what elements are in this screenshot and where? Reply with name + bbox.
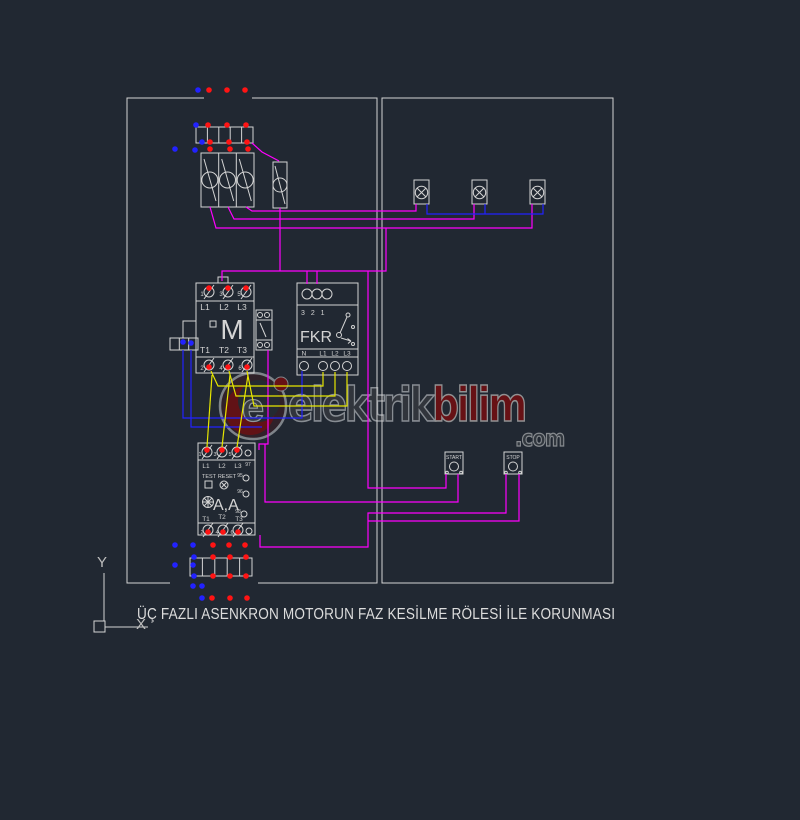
control-fuse	[273, 162, 287, 208]
contactor-t3: T3	[237, 345, 247, 355]
top-terminal-strip	[196, 127, 253, 143]
coil-link-wire	[183, 321, 196, 338]
schematic-drawing: 1 3 5 L1 L2 L3 M T1 T2 T3 2 4 6	[0, 0, 800, 820]
start-button-label: START	[446, 455, 462, 461]
contactor-l1: L1	[200, 302, 210, 312]
overload-aux-96: 96	[237, 489, 243, 495]
overload-aux-97: 97	[245, 462, 251, 468]
main-fuse-block	[201, 153, 254, 207]
contactor-l3: L3	[237, 302, 247, 312]
overload-terminal-6: 6	[230, 530, 233, 536]
overload-l1: L1	[202, 463, 210, 470]
overload-terminal-5: 5	[228, 452, 231, 458]
fkr-l3-label: L3	[343, 351, 351, 358]
overload-terminal-4: 4	[215, 530, 218, 536]
overload-l3: L3	[234, 463, 242, 470]
overload-name: A,A	[213, 497, 239, 514]
contactor-terminal-2: 2	[200, 366, 204, 372]
fkr-relay-block: 3 2 1 FKR N L1 L2 L3	[297, 283, 358, 375]
ucs-x-label: X	[136, 616, 146, 633]
overload-l2: L2	[218, 463, 226, 470]
overload-test-label: TEST	[202, 474, 217, 480]
lamp-icon-2	[472, 180, 487, 204]
bottom-terminal-strip	[190, 558, 252, 576]
contactor-terminal-4: 4	[219, 366, 223, 372]
lamp-icon-1	[414, 180, 429, 204]
panel-outlines	[127, 98, 613, 583]
fkr-name: FKR	[300, 329, 332, 346]
motor-wiring-yellow	[207, 371, 347, 447]
stop-button-label: STOP	[506, 455, 520, 461]
stop-button-symbol: STOP	[504, 452, 522, 474]
contactor-terminal-6: 6	[238, 366, 242, 372]
blue-node-dots	[172, 87, 205, 601]
cad-canvas: e elektrikbilim .com	[0, 0, 800, 820]
aux-contact-block	[256, 310, 272, 350]
fkr-sequence: 3 2 1	[301, 310, 327, 317]
signal-lamps	[414, 180, 545, 204]
overload-terminal-1: 1	[198, 452, 201, 458]
start-button-symbol: START	[445, 452, 463, 474]
overload-terminal-3: 3	[213, 452, 216, 458]
fkr-l1-label: L1	[319, 351, 327, 358]
overload-t3: T3	[235, 516, 243, 523]
lamp-icon-3	[530, 180, 545, 204]
fkr-l2-label: L2	[331, 351, 339, 358]
contactor-l2: L2	[219, 302, 229, 312]
overload-reset-label: RESET	[218, 474, 237, 480]
ucs-y-label: Y	[97, 554, 107, 571]
contactor-block: 1 3 5 L1 L2 L3 M T1 T2 T3 2 4 6	[196, 277, 254, 373]
fkr-contact-icon	[337, 313, 355, 346]
overload-relay-block: 1 3 5 L1 L2 L3 97 TEST RESET 95 96 98 A,…	[198, 443, 255, 537]
contactor-name: M	[220, 314, 243, 345]
contactor-t2: T2	[219, 345, 229, 355]
overload-t1: T1	[202, 516, 210, 523]
overload-t2: T2	[218, 514, 226, 521]
fkr-n-label: N	[302, 351, 307, 358]
contactor-t1: T1	[200, 345, 210, 355]
overload-terminal-2: 2	[200, 530, 203, 536]
drawing-title: ÜÇ FAZLI ASENKRON MOTORUN FAZ KESİLME RÖ…	[137, 606, 615, 624]
overload-aux-95: 95	[237, 473, 243, 479]
